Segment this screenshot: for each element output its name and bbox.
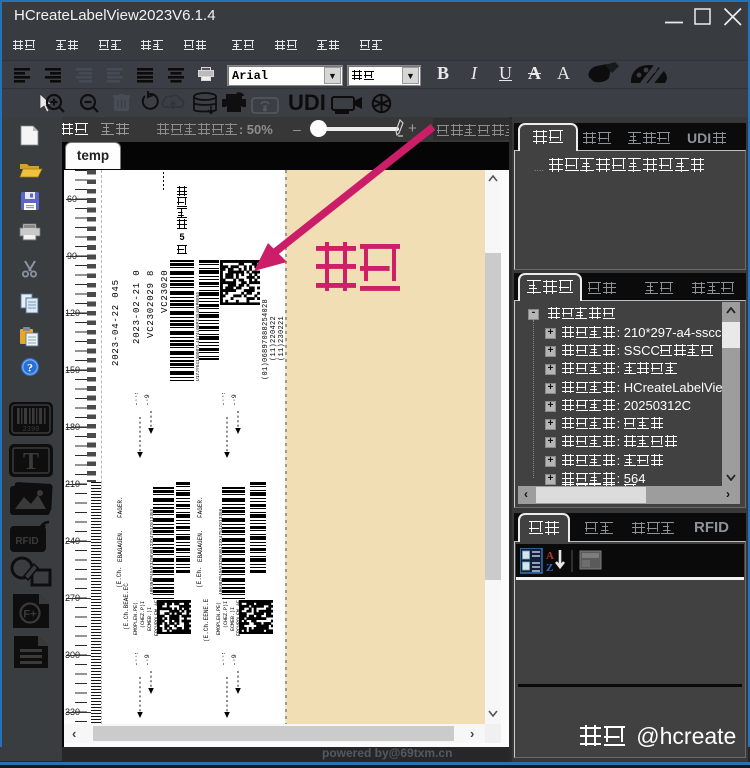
svg-text:-··9: -··9 — [135, 393, 140, 406]
svg-text:A: A — [546, 550, 554, 562]
svg-text:?: ? — [27, 361, 33, 375]
svg-text:2390: 2390 — [23, 426, 40, 434]
svg-text:-··9: -··9 — [222, 393, 227, 406]
svg-text:UDI: UDI — [288, 90, 326, 115]
svg-text:RFID: RFID — [15, 536, 38, 547]
svg-text:F+: F+ — [23, 609, 36, 621]
svg-text:-·9: -·9 — [231, 654, 238, 666]
svg-text:-·9: -·9 — [144, 394, 151, 406]
svg-text:-··9: -··9 — [222, 653, 227, 666]
svg-text:Z: Z — [546, 562, 553, 574]
svg-text:-·9: -·9 — [231, 394, 238, 406]
svg-text:-··9: -··9 — [135, 653, 140, 666]
svg-text:T: T — [23, 449, 39, 475]
svg-text:-·9: -·9 — [144, 654, 151, 666]
